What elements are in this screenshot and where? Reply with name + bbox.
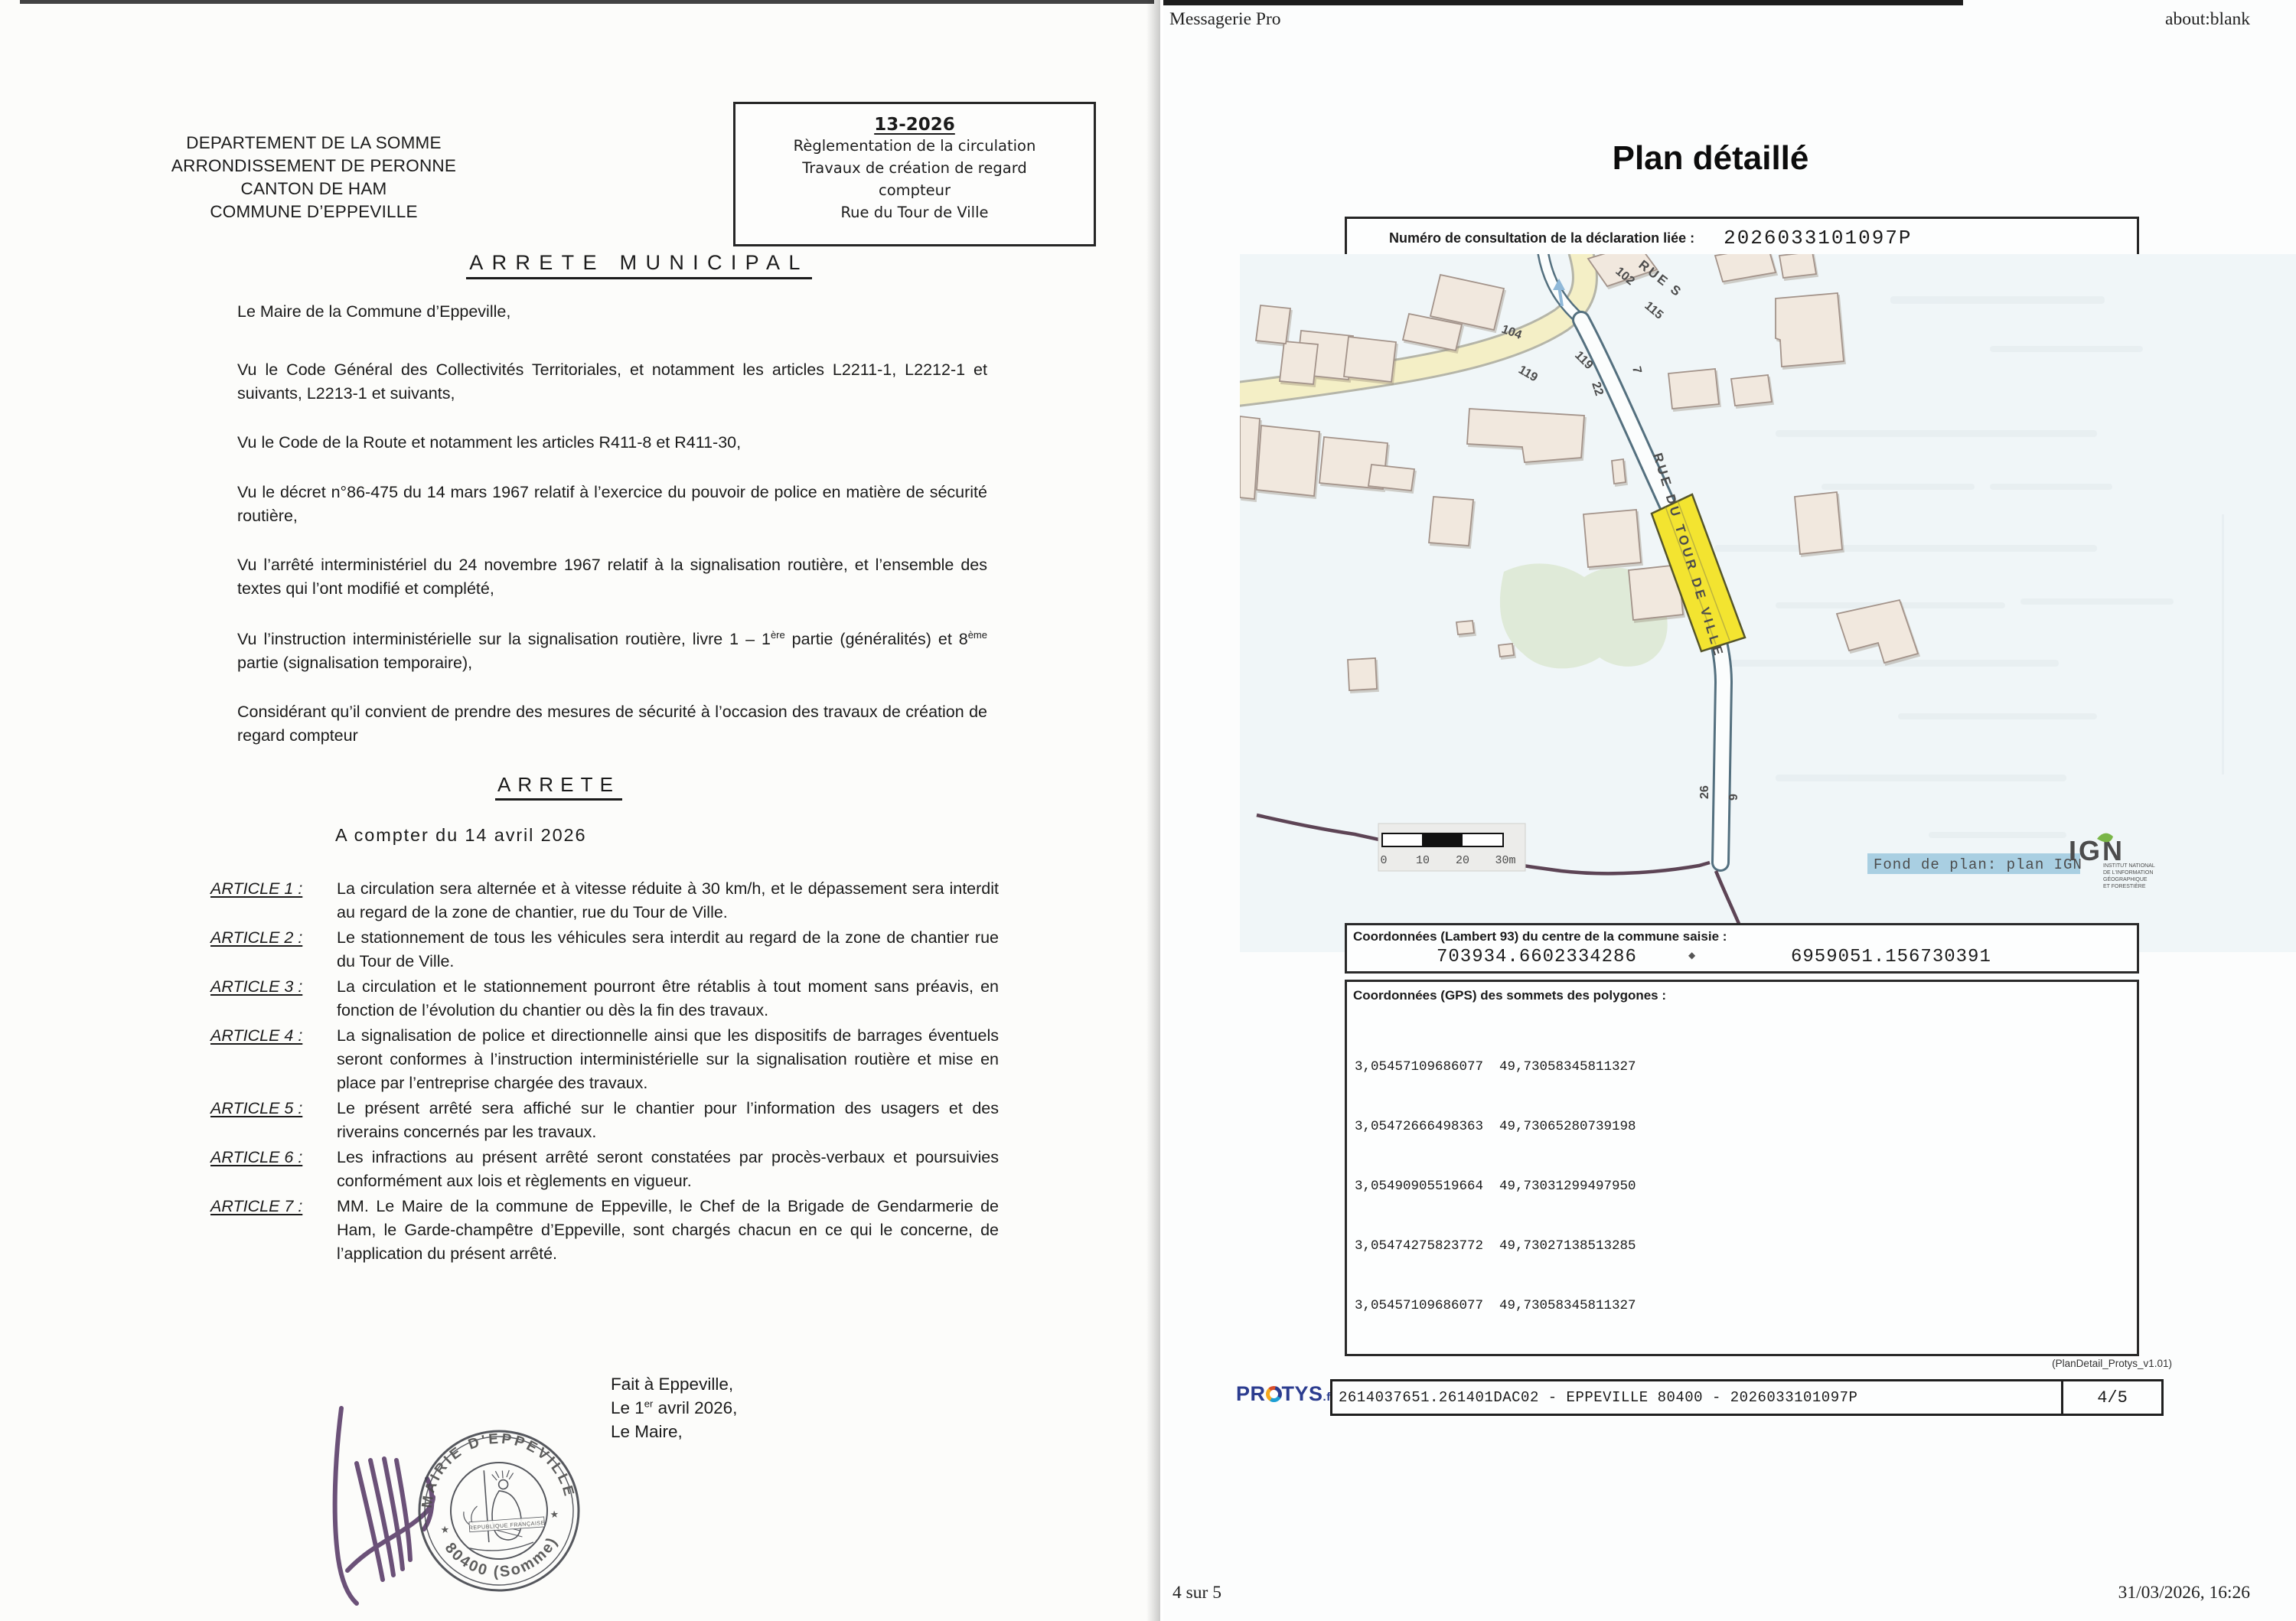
svg-text:DE L'INFORMATION: DE L'INFORMATION: [2103, 870, 2153, 876]
consultation-number-box: Numéro de consultation de la déclaration…: [1345, 217, 2139, 259]
plan-title: Plan détaillé: [1278, 139, 2143, 178]
recital: Vu le Code Général des Collectivités Ter…: [237, 358, 987, 406]
article-row: ARTICLE 4 :La signalisation de police et…: [210, 1024, 999, 1095]
print-footer-datetime: 31/03/2026, 16:26: [2118, 1583, 2250, 1603]
header-line: DEPARTEMENT DE LA SOMME: [115, 132, 513, 155]
article-row: ARTICLE 6 :Les infractions au présent ar…: [210, 1146, 999, 1193]
article-label: ARTICLE 5 :: [210, 1097, 337, 1144]
recital: Vu le Code de la Route et notamment les …: [237, 431, 987, 455]
document-title: ARRETE MUNICIPAL: [245, 251, 1033, 279]
article-row: ARTICLE 2 :Le stationnement de tous les …: [210, 926, 999, 974]
gps-point-list: 3,05457109686077 49,73058345811327 3,054…: [1355, 1017, 1636, 1355]
svg-text:30m: 30m: [1495, 854, 1515, 867]
article-text: La circulation et le stationnement pourr…: [337, 975, 999, 1023]
scan-artifact-top: [1163, 0, 1963, 5]
consultation-label: Numéro de consultation de la déclaration…: [1389, 230, 1694, 246]
gps-point: 3,05474275823772 49,73027138513285: [1355, 1236, 1636, 1256]
page-plan: Messagerie Pro about:blank Plan détaillé…: [1163, 0, 2296, 1621]
print-header: Messagerie Pro about:blank: [1169, 9, 2250, 30]
protys-reference: 2614037651.261401DAC02 - EPPEVILLE 80400…: [1332, 1389, 2061, 1406]
decree-number: 13-2026: [735, 115, 1094, 135]
gps-label: Coordonnées (GPS) des sommets des polygo…: [1353, 988, 1666, 1003]
arrete-heading: ARRETE: [444, 773, 673, 801]
decree-reference-box: 13-2026 Règlementation de la circulation…: [733, 102, 1096, 246]
page-indicator: 4/5: [2061, 1381, 2161, 1414]
print-footer: 4 sur 5 31/03/2026, 16:26: [1172, 1583, 2250, 1603]
svg-text:ET FORESTIÈRE: ET FORESTIÈRE: [2103, 882, 2146, 889]
gps-coordinates-box: Coordonnées (GPS) des sommets des polygo…: [1345, 980, 2139, 1356]
article-row: ARTICLE 1 :La circulation sera alternée …: [210, 877, 999, 925]
gps-point: 3,05472666498363 49,73065280739198: [1355, 1117, 1636, 1137]
closing-line: Le 1er avril 2026,: [611, 1396, 737, 1420]
lambert-x-value: 703934.6602334286: [1437, 947, 1637, 967]
protys-o-ring-icon: [1266, 1386, 1282, 1402]
svg-text:20: 20: [1456, 854, 1469, 867]
protys-logo: PRTYS.fr: [1236, 1382, 1336, 1406]
considerant: Considérant qu’il convient de prendre de…: [237, 700, 987, 748]
plan-version-note: (PlanDetail_Protys_v1.01): [2052, 1358, 2172, 1369]
closing-line: Le Maire,: [611, 1420, 737, 1443]
article-label: ARTICLE 6 :: [210, 1146, 337, 1193]
header-line: CANTON DE HAM: [115, 178, 513, 201]
scan-artifact-top: [20, 0, 1154, 4]
map-scale-bar: 0 10 20 30m: [1378, 824, 1525, 871]
lambert-y-value: 6959051.156730391: [1791, 947, 1991, 967]
gps-point: 3,05457109686077 49,73058345811327: [1355, 1057, 1636, 1077]
recital: Vu l’arrêté interministériel du 24 novem…: [237, 553, 987, 601]
effective-date-line: A compter du 14 avril 2026: [335, 825, 586, 846]
gps-point: 3,05490905519664 49,73031299497950: [1355, 1176, 1636, 1196]
article-label: ARTICLE 1 :: [210, 877, 337, 925]
municipal-stamp: MAIRIE D'EPPEVILLE 80400 (Somme) ★ ★: [413, 1425, 585, 1597]
consultation-number: 2026033101097P: [1724, 227, 1912, 250]
protys-reference-bar: 2614037651.261401DAC02 - EPPEVILLE 80400…: [1330, 1379, 2164, 1416]
article-text: Les infractions au présent arrêté seront…: [337, 1146, 999, 1193]
lambert-coordinates-box: Coordonnées (Lambert 93) du centre de la…: [1345, 923, 2139, 974]
scanned-document-view: DEPARTEMENT DE LA SOMME ARRONDISSEMENT D…: [0, 0, 2296, 1621]
decree-subject-line: Travaux de création de regard: [735, 157, 1094, 179]
detail-map: RUE S RUE DU TOUR DE VILLE 102 115 104 1…: [1240, 254, 2296, 952]
recital-instruction: Vu l’instruction interministérielle sur …: [237, 628, 987, 675]
article-label: ARTICLE 3 :: [210, 975, 337, 1023]
decree-subject-line: Rue du Tour de Ville: [735, 201, 1094, 223]
article-row: ARTICLE 7 :MM. Le Maire de la commune de…: [210, 1195, 999, 1266]
recital: Vu le décret n°86-475 du 14 mars 1967 re…: [237, 481, 987, 528]
svg-text:INSTITUT NATIONAL: INSTITUT NATIONAL: [2103, 863, 2155, 869]
print-footer-page: 4 sur 5: [1172, 1583, 1221, 1603]
svg-text:9: 9: [1727, 794, 1740, 801]
page-fold-shadow: [1146, 0, 1160, 1621]
lambert-label: Coordonnées (Lambert 93) du centre de la…: [1353, 929, 1727, 944]
decree-subject-line: compteur: [735, 179, 1094, 201]
page-arrete: DEPARTEMENT DE LA SOMME ARRONDISSEMENT D…: [0, 0, 1160, 1621]
header-line: COMMUNE D’EPPEVILLE: [115, 201, 513, 223]
svg-text:10: 10: [1416, 854, 1430, 867]
stamp-marianne-figure: [461, 1467, 534, 1552]
closing-block: Fait à Eppeville, Le 1er avril 2026, Le …: [611, 1372, 737, 1443]
article-text: MM. Le Maire de la commune de Eppeville,…: [337, 1195, 999, 1266]
article-text: Le présent arrêté sera affiché sur le ch…: [337, 1097, 999, 1144]
svg-text:IGN: IGN: [2069, 835, 2125, 866]
article-label: ARTICLE 2 :: [210, 926, 337, 974]
stamp-star-icon: ★: [440, 1524, 450, 1536]
header-line: ARRONDISSEMENT DE PERONNE: [115, 155, 513, 178]
map-attribution: Fond de plan: plan IGN: [1867, 853, 2082, 874]
gps-point: 3,05457109686077 49,73058345811327: [1355, 1296, 1636, 1316]
svg-text:Fond de plan: plan IGN: Fond de plan: plan IGN: [1874, 856, 2082, 873]
svg-text:0: 0: [1380, 854, 1387, 867]
stamp-star-icon: ★: [550, 1508, 559, 1521]
separator-diamond-icon: ◆: [1688, 950, 1695, 961]
article-row: ARTICLE 5 :Le présent arrêté sera affich…: [210, 1097, 999, 1144]
closing-line: Fait à Eppeville,: [611, 1372, 737, 1396]
svg-text:GÉOGRAPHIQUE: GÉOGRAPHIQUE: [2103, 876, 2148, 882]
article-row: ARTICLE 3 :La circulation et le stationn…: [210, 975, 999, 1023]
svg-text:26: 26: [1698, 785, 1711, 799]
commune-header: DEPARTEMENT DE LA SOMME ARRONDISSEMENT D…: [115, 132, 513, 223]
print-header-url: about:blank: [2165, 9, 2250, 30]
decree-subject-line: Règlementation de la circulation: [735, 135, 1094, 157]
recitals-block: Le Maire de la Commune d’Eppeville, Vu l…: [237, 300, 987, 748]
intro-line: Le Maire de la Commune d’Eppeville,: [237, 300, 987, 324]
article-text: Le stationnement de tous les véhicules s…: [337, 926, 999, 974]
article-label: ARTICLE 4 :: [210, 1024, 337, 1095]
print-header-title: Messagerie Pro: [1169, 9, 1281, 30]
article-text: La circulation sera alternée et à vitess…: [337, 877, 999, 925]
articles-list: ARTICLE 1 :La circulation sera alternée …: [210, 877, 999, 1267]
article-text: La signalisation de police et directionn…: [337, 1024, 999, 1095]
article-label: ARTICLE 7 :: [210, 1195, 337, 1266]
